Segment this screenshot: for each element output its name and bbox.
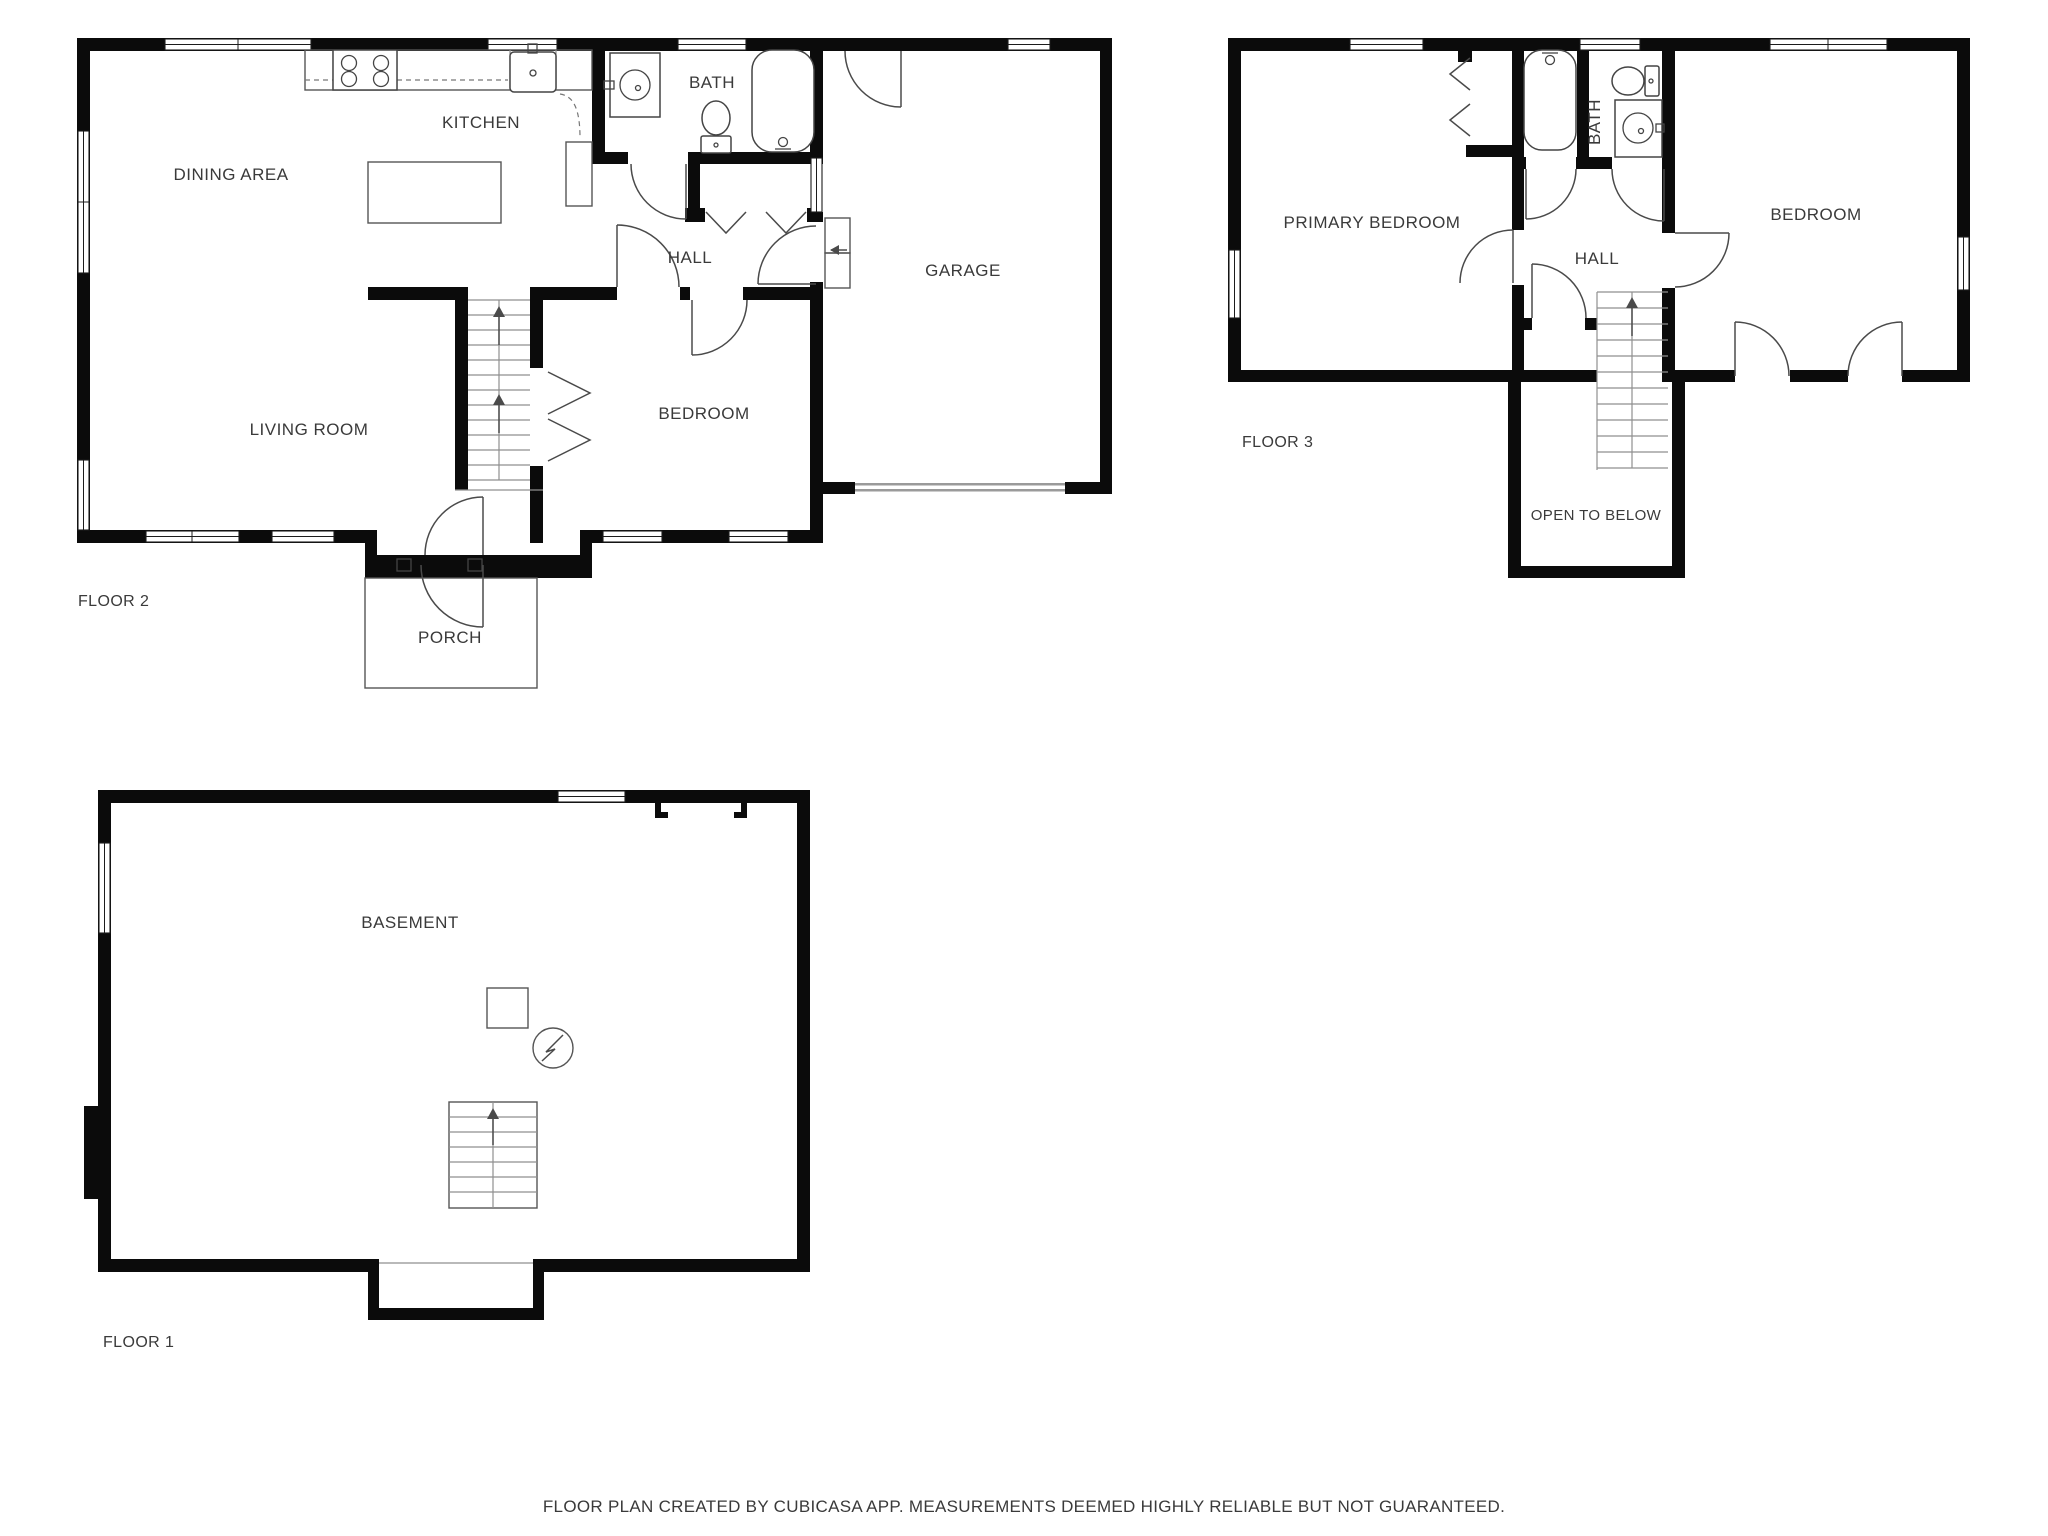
- room-label-primary-bedroom: PRIMARY BEDROOM: [1284, 213, 1461, 232]
- door: [1612, 169, 1664, 221]
- window: [558, 791, 625, 802]
- stove-icon: [333, 50, 397, 90]
- floor1-walls: [84, 790, 810, 1320]
- window: [78, 460, 89, 530]
- window: [1770, 39, 1887, 50]
- floor1-windows: [99, 791, 625, 933]
- floor3-plan: PRIMARY BEDROOM BATH HALL BEDROOM OPEN T…: [1228, 38, 1970, 578]
- kitchen-island: [368, 162, 501, 223]
- floor2-plan: DINING AREA KITCHEN BATH HALL GARAGE LIV…: [77, 38, 1112, 688]
- bathtub-icon: [1524, 50, 1576, 150]
- door: [1526, 169, 1576, 219]
- window: [811, 158, 822, 212]
- room-label-bath: BATH: [689, 73, 735, 92]
- window: [99, 843, 110, 933]
- floor3-label: FLOOR 3: [1242, 434, 1313, 451]
- furnace-icon: [487, 988, 528, 1028]
- garage-service-door: [845, 51, 901, 107]
- closet-bifold-icon: [706, 212, 806, 233]
- door: [1675, 233, 1729, 287]
- electrical-panel-icon: [533, 1028, 573, 1068]
- room-label-dining-area: DINING AREA: [173, 165, 288, 184]
- window: [678, 39, 746, 50]
- fridge: [566, 142, 592, 206]
- floor2-label: FLOOR 2: [78, 593, 149, 610]
- window: [1958, 237, 1969, 290]
- window: [729, 531, 788, 542]
- kitchen-sink-icon: [510, 44, 556, 92]
- floor1-label: FLOOR 1: [103, 1334, 174, 1351]
- door: [1460, 230, 1513, 283]
- door: [1532, 264, 1586, 318]
- floor1-plan: BASEMENT FLOOR 1: [84, 790, 810, 1351]
- toilet-icon: [701, 101, 731, 153]
- floor2-stairs: [455, 300, 543, 490]
- room-label-hall: HALL: [1575, 249, 1620, 268]
- stairs-up-arrow-icon: [493, 394, 505, 433]
- bath-sink-icon: [1615, 100, 1664, 157]
- window: [165, 39, 311, 50]
- window: [146, 531, 239, 542]
- bath-sink-icon: [604, 53, 660, 117]
- front-door: [758, 226, 816, 284]
- floor2-walls: [77, 38, 1112, 578]
- door: [692, 300, 747, 355]
- room-label-bedroom: BEDROOM: [1770, 205, 1861, 224]
- room-label-basement: BASEMENT: [361, 913, 459, 932]
- toilet-icon: [1612, 66, 1659, 96]
- room-label-kitchen: KITCHEN: [442, 113, 520, 132]
- floor3-doors: [1460, 169, 1902, 376]
- room-label-hall: HALL: [668, 248, 713, 267]
- window: [1580, 39, 1640, 50]
- floor3-stairs: [1597, 292, 1668, 470]
- room-label-bath: BATH: [1585, 99, 1604, 145]
- footer-disclaimer: FLOOR PLAN CREATED BY CUBICASA APP. MEAS…: [543, 1497, 1505, 1516]
- window: [1008, 39, 1050, 50]
- room-label-bedroom: BEDROOM: [658, 404, 749, 423]
- floor-plan-sheet: DINING AREA KITCHEN BATH HALL GARAGE LIV…: [0, 0, 2048, 1536]
- door: [631, 164, 686, 219]
- window: [78, 131, 89, 273]
- room-label-garage: GARAGE: [925, 261, 1001, 280]
- bathtub-icon: [752, 50, 814, 152]
- window: [1350, 39, 1423, 50]
- door: [1848, 322, 1902, 376]
- beam-notch: [655, 803, 668, 818]
- primary-closet-bifold-icon: [1450, 58, 1470, 136]
- bedroom-closet-bifold-icon: [548, 372, 590, 461]
- beam-notch: [734, 803, 747, 818]
- garage-door: [855, 483, 1065, 492]
- stairs-up-arrow-icon: [487, 1108, 499, 1145]
- room-label-porch: PORCH: [418, 628, 482, 647]
- window: [1229, 250, 1240, 318]
- window: [603, 531, 662, 542]
- window: [488, 39, 557, 50]
- floor3-windows: [1229, 39, 1969, 318]
- window: [272, 531, 334, 542]
- stairs-up-arrow-icon: [493, 306, 505, 345]
- entry-stoop: [825, 218, 850, 288]
- room-label-living-room: LIVING ROOM: [250, 420, 369, 439]
- room-label-open-to-below: OPEN TO BELOW: [1531, 507, 1662, 524]
- floor1-stairs: [449, 1102, 537, 1208]
- stairs-up-arrow-icon: [1626, 297, 1638, 336]
- door: [1735, 322, 1789, 376]
